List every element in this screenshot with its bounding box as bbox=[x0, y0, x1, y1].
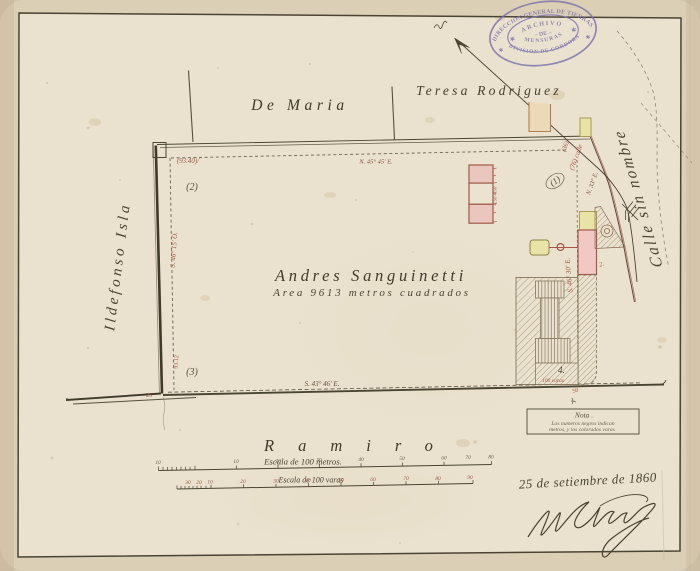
svg-text:4.: 4. bbox=[558, 365, 565, 375]
svg-text:S. 43° 46' E.: S. 43° 46' E. bbox=[305, 380, 340, 388]
svg-text:30: 30 bbox=[272, 479, 279, 485]
svg-text:80: 80 bbox=[488, 455, 494, 461]
svg-text:De Maria: De Maria bbox=[250, 97, 349, 114]
svg-text:Andres Sanguinetti: Andres Sanguinetti bbox=[274, 266, 467, 285]
svg-text:metros, y los colorados varas: metros, y los colorados varas bbox=[549, 427, 615, 433]
svg-text:4.50 4.50: 4.50 4.50 bbox=[494, 186, 499, 205]
svg-text:90: 90 bbox=[467, 475, 473, 481]
svg-text:(93.40)/: (93.40)/ bbox=[177, 157, 200, 165]
svg-text:(2): (2) bbox=[186, 182, 198, 193]
svg-text:100 varas: 100 varas bbox=[542, 378, 564, 384]
svg-text:10: 10 bbox=[207, 480, 213, 486]
svg-text:70: 70 bbox=[403, 476, 409, 482]
svg-text:60: 60 bbox=[370, 477, 376, 483]
svg-text:30: 30 bbox=[315, 458, 322, 464]
svg-text:93.12: 93.12 bbox=[174, 355, 181, 369]
svg-text:30: 30 bbox=[184, 480, 191, 486]
svg-text:20: 20 bbox=[275, 459, 281, 465]
svg-text:10: 10 bbox=[233, 459, 239, 465]
svg-text:N. 45° 45' E.: N. 45° 45' E. bbox=[358, 159, 393, 166]
svg-text:Nota .: Nota . bbox=[574, 411, 593, 420]
svg-text:40: 40 bbox=[305, 477, 311, 484]
svg-text:✱: ✱ bbox=[571, 27, 577, 35]
svg-text:50: 50 bbox=[338, 478, 344, 484]
svg-text:20: 20 bbox=[196, 480, 202, 486]
svg-text:25: 25 bbox=[146, 393, 152, 399]
svg-text:10: 10 bbox=[155, 460, 161, 466]
svg-text:(3): (3) bbox=[186, 367, 198, 378]
svg-text:Teresa Rodriguez: Teresa Rodriguez bbox=[416, 83, 562, 98]
svg-text:60: 60 bbox=[441, 456, 447, 462]
svg-text:Area 9613 metros cuadrados: Area 9613 metros cuadrados bbox=[272, 287, 470, 299]
svg-text:50: 50 bbox=[399, 456, 405, 462]
svg-text:Ramiro: Ramiro bbox=[263, 436, 457, 455]
svg-text:80: 80 bbox=[435, 476, 441, 482]
svg-text:70: 70 bbox=[465, 455, 471, 461]
svg-text:✱: ✱ bbox=[510, 36, 516, 44]
svg-text:20: 20 bbox=[240, 479, 246, 485]
svg-text:40: 40 bbox=[358, 456, 364, 463]
